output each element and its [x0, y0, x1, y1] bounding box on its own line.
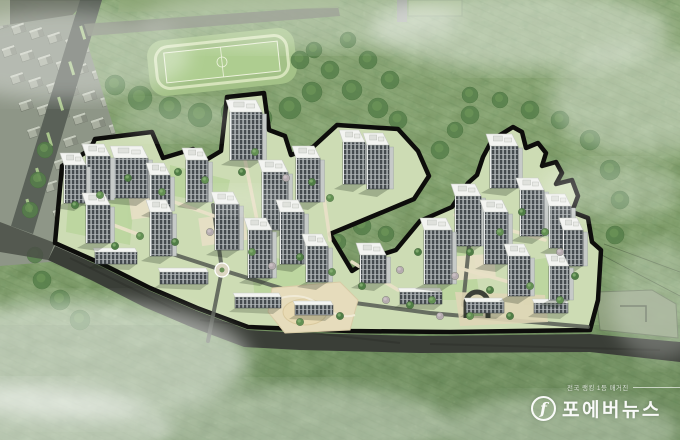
site-rendering: [0, 0, 680, 440]
roundabout: [215, 263, 229, 277]
aerial-rendering-stage: 전국 랭킹 1등 매거진 f 포에버뉴스: [0, 0, 680, 440]
